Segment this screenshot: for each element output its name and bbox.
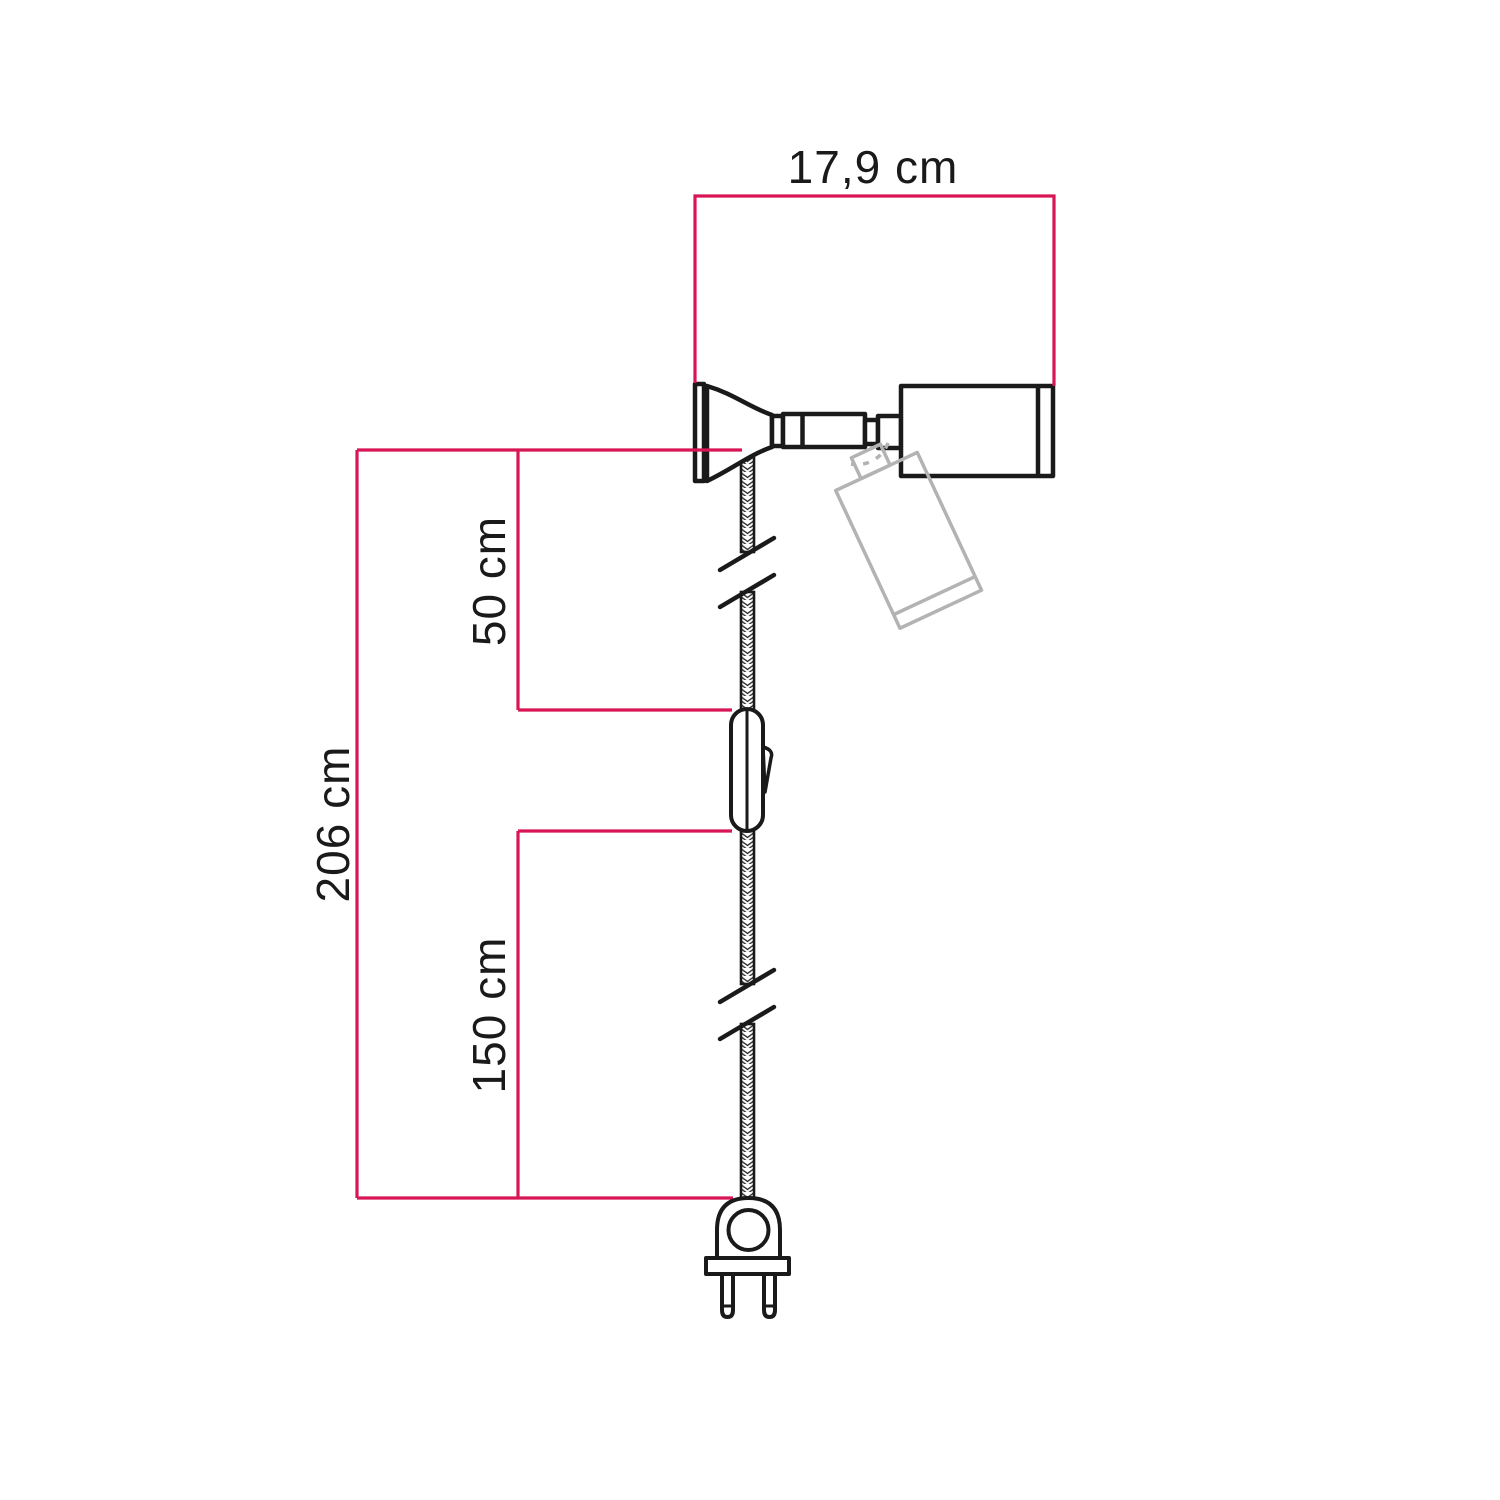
plug-ring-hole [729,1210,769,1250]
dimension-lines [357,196,1054,1198]
two-pin-plug [706,1198,789,1317]
wall-plate [695,384,704,481]
dimension-labels: 17,9 cm 50 cm 206 cm 150 cm [307,141,958,1093]
plug-prong-left [722,1274,733,1317]
cable-upper-segment-2 [741,592,754,710]
lamp-dimension-diagram: 17,9 cm 50 cm 206 cm 150 cm [0,0,1500,1500]
diagram-canvas: 17,9 cm 50 cm 206 cm 150 cm [0,0,1500,1500]
inline-switch [731,709,772,831]
cable-lower-segment-1 [741,831,754,984]
ghost-head-body [836,452,982,628]
ghost-head-cap-seam [894,577,976,615]
dimension-head-width-line [695,196,1054,386]
dimension-head-width-label: 17,9 cm [788,141,959,193]
arm-cylinder [783,414,865,447]
plug-prong-right [764,1274,775,1317]
dimension-lower-cable-label: 150 cm [463,937,515,1094]
dimension-upper-cable-label: 50 cm [463,516,515,646]
cable-lower-segment-2 [741,1024,754,1198]
bell-base [707,386,772,481]
plug-flange [706,1258,789,1274]
dimension-total-label: 206 cm [307,746,359,903]
